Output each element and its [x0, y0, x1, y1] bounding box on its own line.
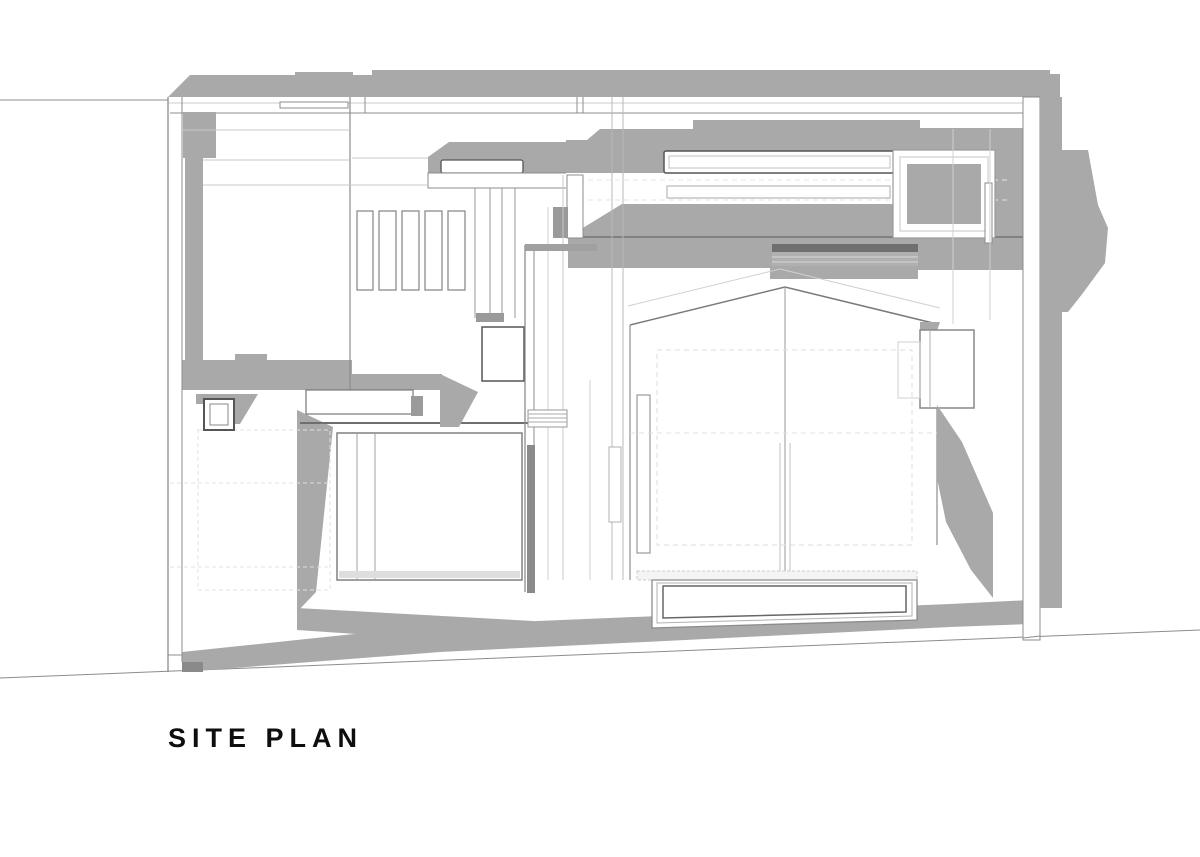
- wall-slot: [637, 395, 650, 553]
- pier: [609, 447, 621, 522]
- west-wing-canopy-bar: [525, 244, 597, 251]
- bay-shadow: [937, 405, 993, 598]
- east-wall-cavity: [1023, 97, 1040, 640]
- louver-5: [448, 211, 465, 290]
- roof-slit: [567, 175, 583, 238]
- entry-canopy: [306, 390, 413, 414]
- roof-monitor-bar: [772, 244, 918, 252]
- roof-step-dark: [553, 207, 568, 238]
- deck-texture-strip: [637, 571, 917, 580]
- pool: [337, 433, 522, 580]
- entry-canopy-cap: [411, 396, 423, 416]
- louver-2: [379, 211, 396, 290]
- east-tree-shadow: [1062, 150, 1108, 312]
- louver-4: [425, 211, 442, 290]
- carport-column-base: [476, 313, 504, 322]
- courtyard-west-shadow: [297, 410, 333, 612]
- louver-3: [402, 211, 419, 290]
- pool-shallow-strip: [339, 571, 520, 578]
- main-roof-upper-right: [995, 173, 1023, 270]
- west-shadow-band: [182, 354, 442, 390]
- west-shadow-wedge: [440, 374, 478, 427]
- west-wall-foot: [182, 662, 203, 672]
- west-interior-wall: [185, 158, 203, 362]
- page: { "title": { "label": "SITE PLAN" }, "dr…: [0, 0, 1200, 857]
- roof-monitor-louvers: [772, 252, 918, 266]
- deck-outer: [652, 580, 917, 628]
- ne-skylight-center: [907, 164, 981, 224]
- ridge-skylight: [664, 151, 895, 173]
- fireplace-box: [482, 327, 524, 381]
- north-wall-ledge: [280, 102, 348, 108]
- clerestory-skylight: [667, 186, 890, 198]
- drawing-title: SITE PLAN: [168, 723, 363, 754]
- canopy-skylight: [441, 160, 523, 173]
- west-interior-wall-head: [183, 112, 216, 158]
- roof-edge-band: [168, 70, 1060, 97]
- louver-1: [357, 211, 373, 290]
- canopy-fascia: [428, 173, 567, 188]
- bay-window: [920, 330, 974, 408]
- gable-outline: [630, 287, 937, 325]
- east-wall-shadow: [1040, 97, 1062, 608]
- roof-slit-east: [985, 183, 992, 243]
